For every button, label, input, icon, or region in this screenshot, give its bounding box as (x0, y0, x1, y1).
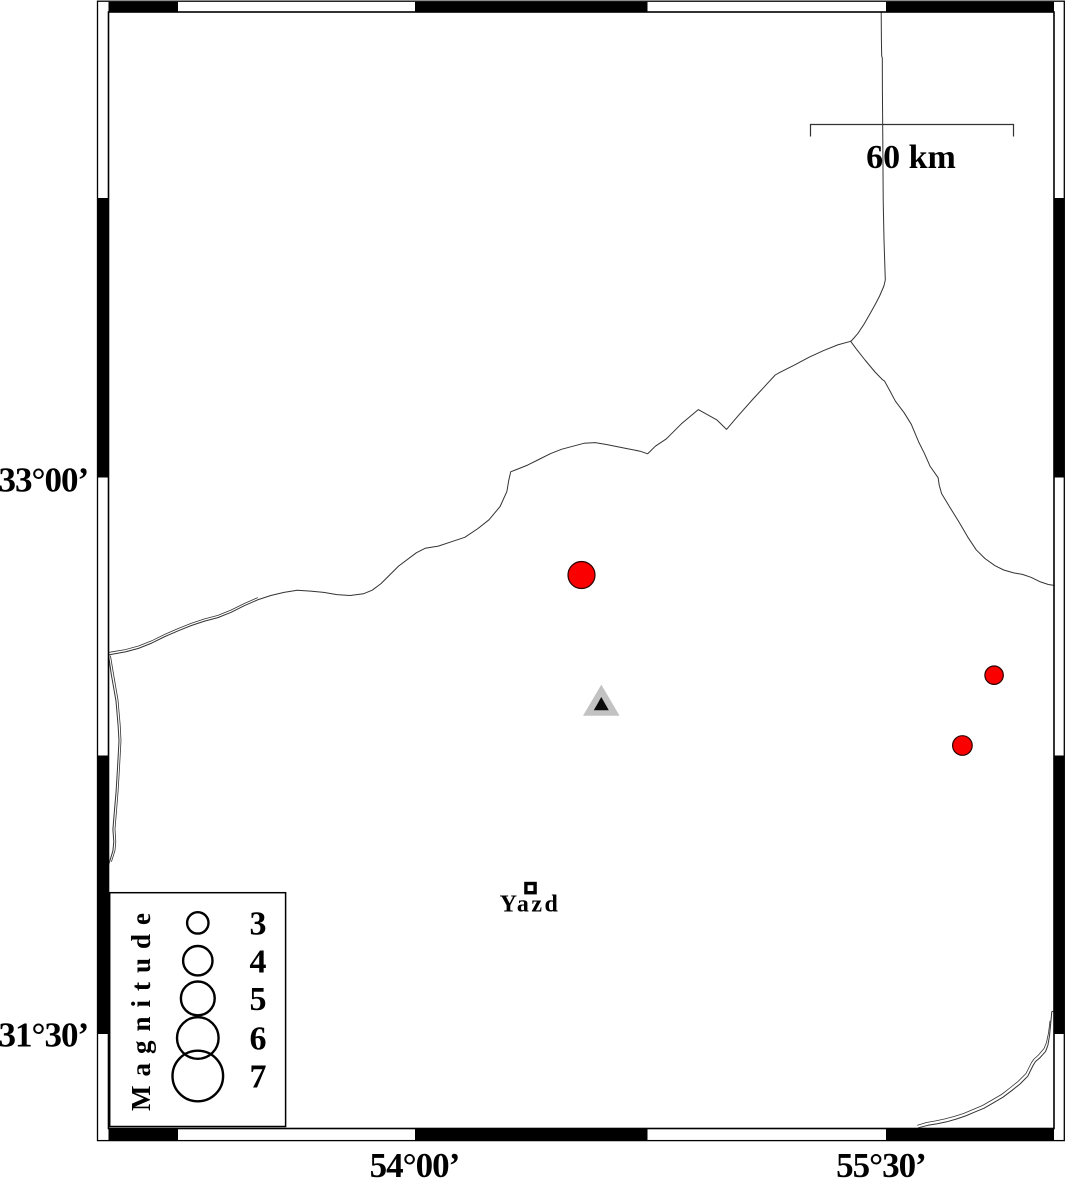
svg-text:Magnitude: Magnitude (126, 904, 156, 1111)
svg-text:3: 3 (250, 906, 267, 943)
svg-text:31°30’: 31°30’ (0, 1016, 88, 1055)
svg-text:Yazd: Yazd (500, 892, 561, 918)
svg-text:4: 4 (250, 943, 267, 980)
svg-text:33°00’: 33°00’ (0, 461, 88, 500)
svg-text:7: 7 (250, 1059, 267, 1096)
svg-text:55°30’: 55°30’ (836, 1146, 926, 1178)
svg-text:60 km: 60 km (866, 139, 956, 176)
svg-text:54°00’: 54°00’ (370, 1146, 460, 1178)
svg-text:6: 6 (250, 1021, 267, 1058)
svg-text:5: 5 (250, 981, 267, 1018)
